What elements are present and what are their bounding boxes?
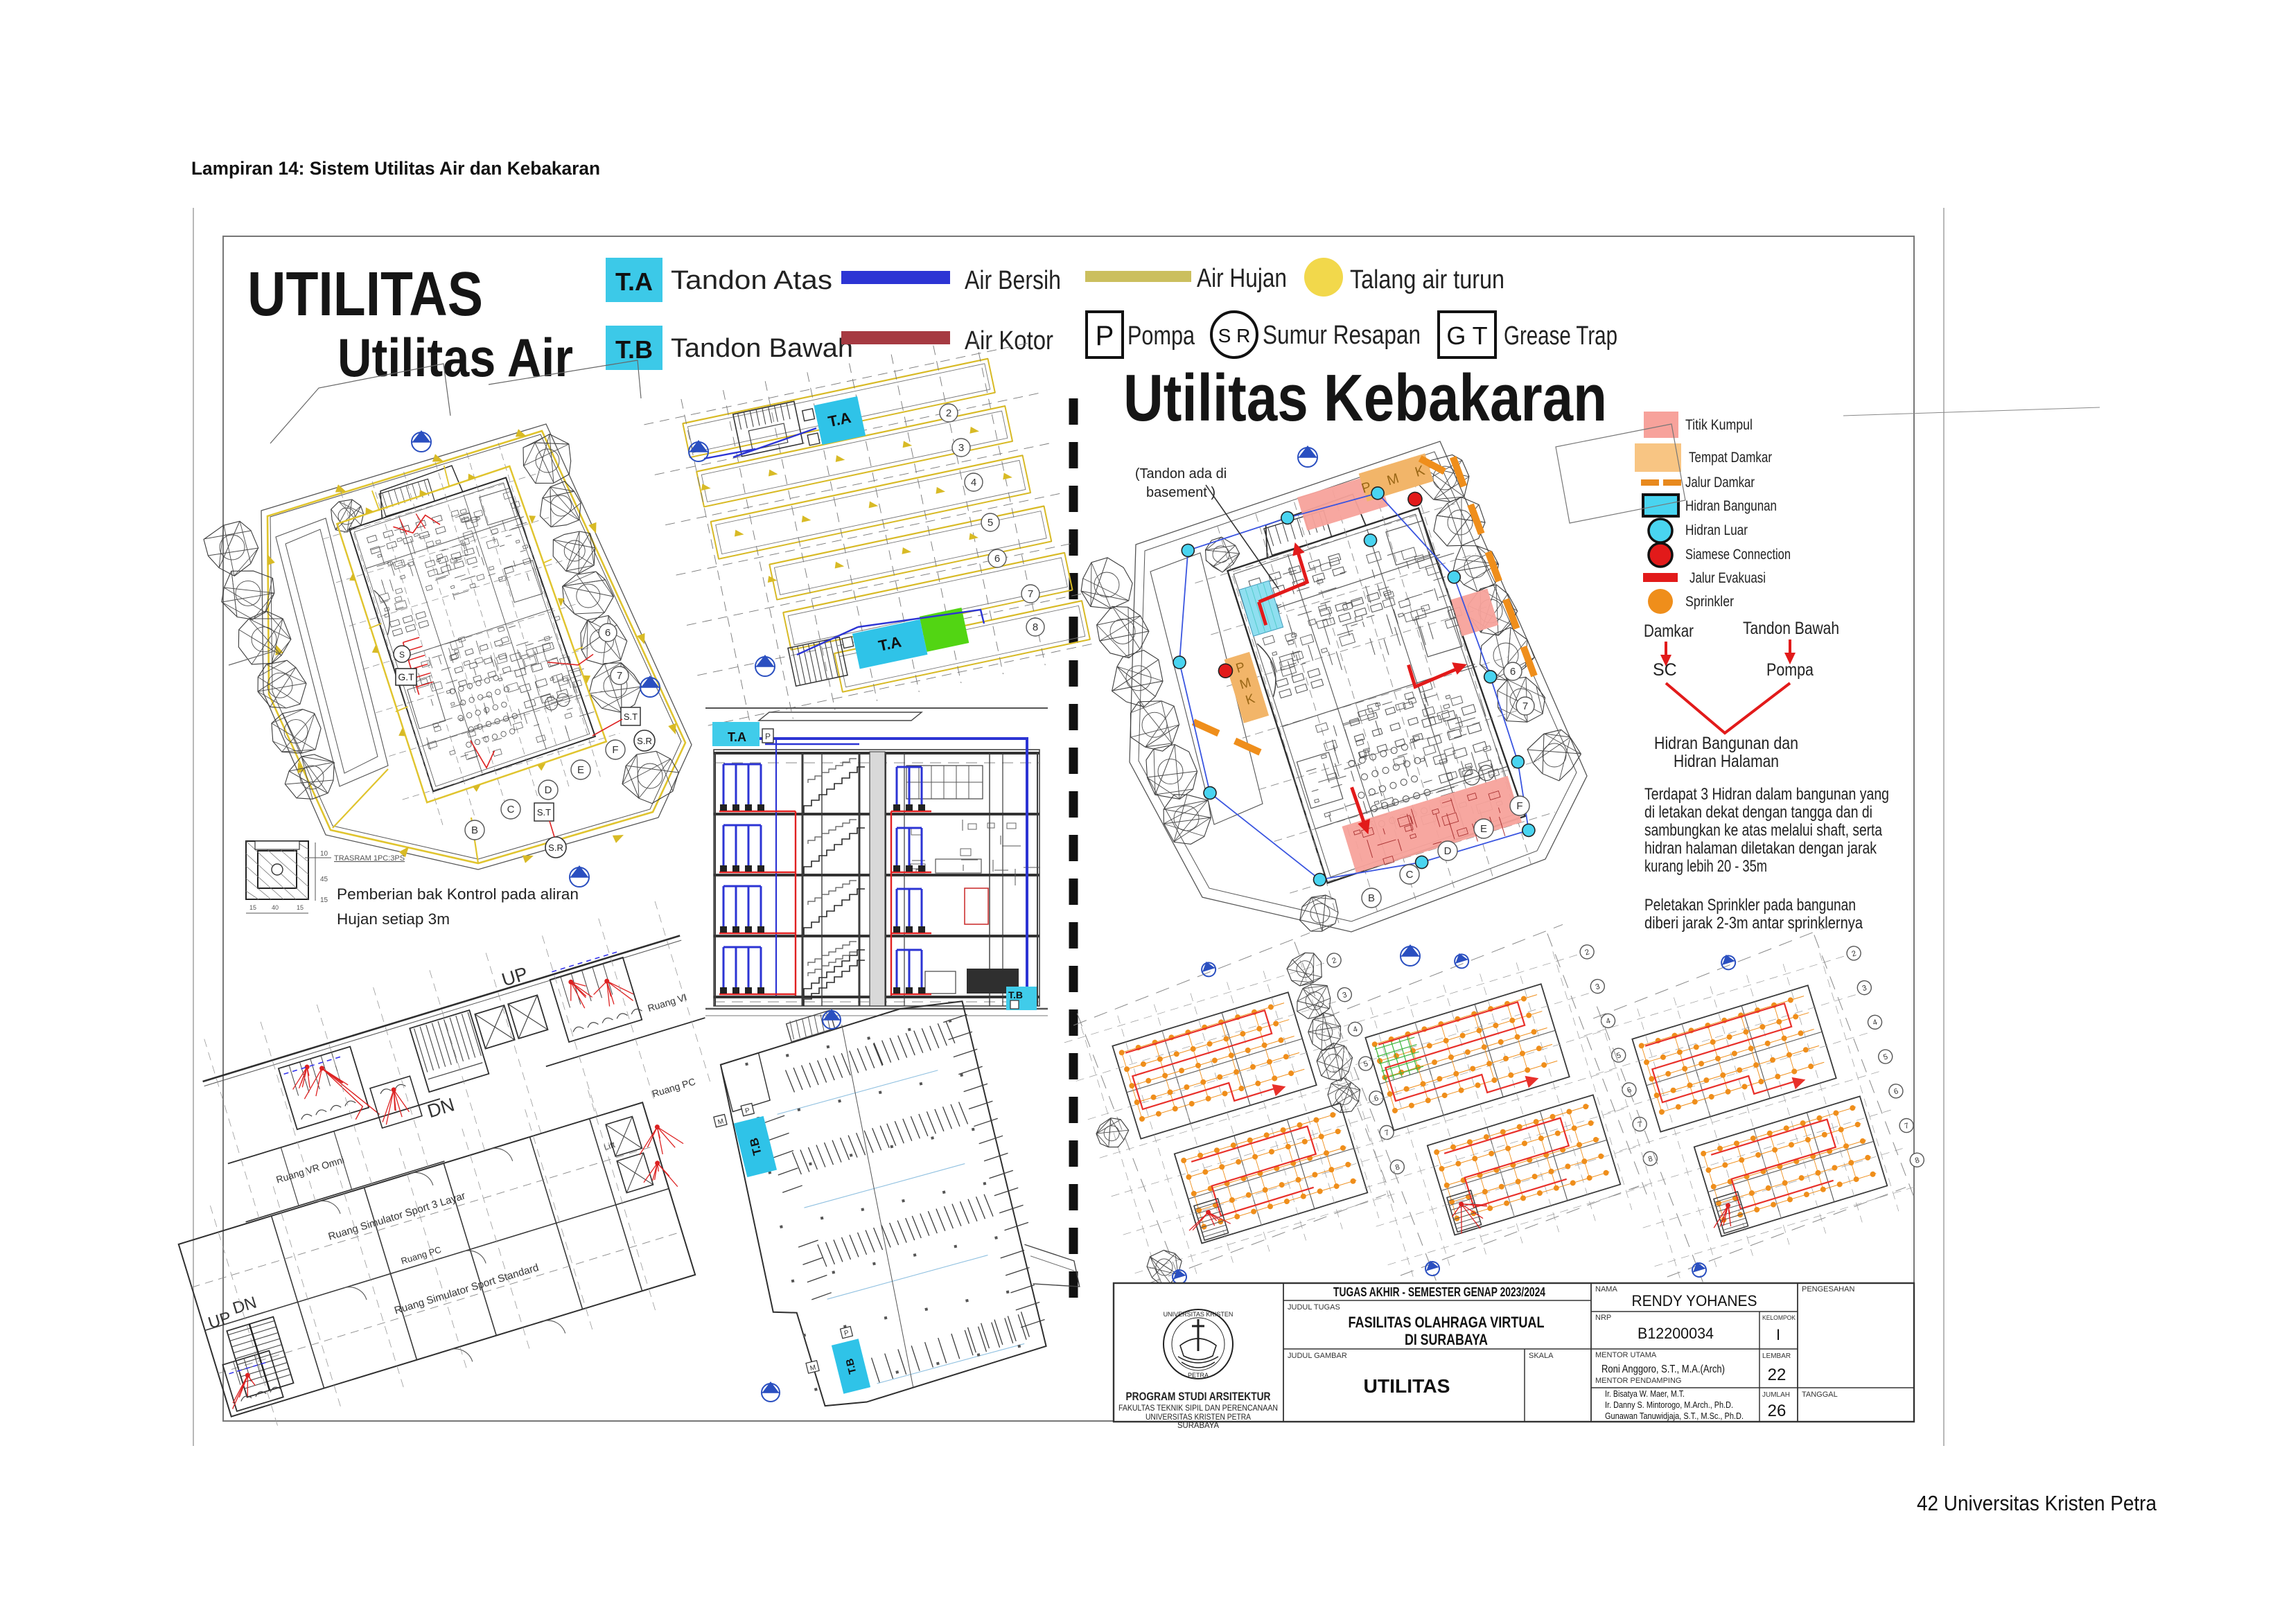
svg-text:Pemberian bak Kontrol pada ali: Pemberian bak Kontrol pada aliran xyxy=(337,885,579,903)
svg-text:7: 7 xyxy=(1028,588,1033,600)
svg-text:Titik Kumpul: Titik Kumpul xyxy=(1685,417,1753,433)
svg-text:F: F xyxy=(612,744,618,756)
svg-text:(Tandon ada di: (Tandon ada di xyxy=(1135,466,1227,482)
svg-text:T.A: T.A xyxy=(615,267,653,296)
svg-text:Utilitas Air: Utilitas Air xyxy=(337,327,573,388)
svg-text:Pompa: Pompa xyxy=(1127,321,1195,351)
svg-text:10: 10 xyxy=(320,850,328,858)
svg-text:Tempat Damkar: Tempat Damkar xyxy=(1689,450,1772,466)
svg-text:45: 45 xyxy=(320,876,328,883)
svg-text:Tandon Atas: Tandon Atas xyxy=(671,266,832,295)
svg-text:Talang air turun: Talang air turun xyxy=(1350,265,1504,294)
svg-text:C: C xyxy=(1406,869,1414,881)
svg-text:6: 6 xyxy=(1510,666,1516,678)
svg-text:C: C xyxy=(507,804,515,815)
svg-text:P: P xyxy=(765,732,771,741)
svg-text:Hidran Bangunan dan: Hidran Bangunan dan xyxy=(1654,734,1798,753)
svg-text:NRP: NRP xyxy=(1595,1314,1611,1322)
svg-text:26: 26 xyxy=(1768,1402,1787,1420)
svg-text:JUDUL GAMBAR: JUDUL GAMBAR xyxy=(1288,1352,1347,1360)
svg-text:Ir. Danny S. Mintorogo, M.Arch: Ir. Danny S. Mintorogo, M.Arch., Ph.D. xyxy=(1605,1400,1733,1410)
svg-text:4: 4 xyxy=(971,477,976,488)
svg-text:Hidran Bangunan: Hidran Bangunan xyxy=(1685,498,1777,514)
svg-text:Terdapat 3 Hidran dalam bangun: Terdapat 3 Hidran dalam bangunan yang xyxy=(1644,785,1889,804)
svg-text:PETRA: PETRA xyxy=(1188,1372,1209,1379)
svg-text:PROGRAM STUDI ARSITEKTUR: PROGRAM STUDI ARSITEKTUR xyxy=(1126,1390,1271,1403)
svg-text:8: 8 xyxy=(1033,621,1038,633)
svg-text:basement ): basement ) xyxy=(1146,485,1215,500)
svg-text:Jalur Evakuasi: Jalur Evakuasi xyxy=(1689,570,1766,586)
svg-text:kurang lebih 20 - 35m: kurang lebih 20 - 35m xyxy=(1644,857,1767,876)
svg-text:di letakan dekat dengan tangga: di letakan dekat dengan tangga dan di xyxy=(1644,803,1872,822)
svg-text:6: 6 xyxy=(605,627,611,639)
svg-text:F: F xyxy=(1516,800,1522,812)
svg-text:sambungkan ke atas melalui sha: sambungkan ke atas melalui shaft, serta xyxy=(1644,821,1883,840)
svg-text:B: B xyxy=(1368,892,1375,904)
svg-text:T.B: T.B xyxy=(615,335,653,364)
svg-text:Roni Anggoro, S.T., M.A.(Arch): Roni Anggoro, S.T., M.A.(Arch) xyxy=(1601,1363,1725,1375)
svg-text:Ir. Bisatya W. Maer, M.T.: Ir. Bisatya W. Maer, M.T. xyxy=(1605,1388,1685,1399)
svg-text:S.R: S.R xyxy=(637,736,652,746)
svg-text:2: 2 xyxy=(946,407,951,419)
svg-text:MENTOR UTAMA: MENTOR UTAMA xyxy=(1595,1351,1657,1359)
svg-text:Lampiran 14: Sistem Utilitas A: Lampiran 14: Sistem Utilitas Air dan Keb… xyxy=(191,158,600,179)
svg-text:Tandon Bawah: Tandon Bawah xyxy=(1743,619,1839,638)
svg-text:TUGAS AKHIR - SEMESTER GENAP 2: TUGAS AKHIR - SEMESTER GENAP 2023/2024 xyxy=(1333,1285,1545,1299)
svg-text:E: E xyxy=(1480,823,1487,835)
svg-text:T.A: T.A xyxy=(728,730,746,744)
svg-text:Peletakan Sprinkler pada bangu: Peletakan Sprinkler pada bangunan xyxy=(1644,896,1856,915)
svg-text:22: 22 xyxy=(1768,1366,1787,1384)
svg-text:diberi jarak 2-3m antar sprink: diberi jarak 2-3m antar sprinklernya xyxy=(1644,914,1863,933)
svg-text:Grease Trap: Grease Trap xyxy=(1504,321,1617,351)
svg-text:S.T: S.T xyxy=(537,807,551,818)
svg-text:S R: S R xyxy=(1218,325,1251,346)
svg-text:15: 15 xyxy=(320,897,328,904)
svg-text:UTILITAS: UTILITAS xyxy=(247,260,483,329)
svg-text:TANGGAL: TANGGAL xyxy=(1802,1391,1838,1399)
svg-text:KELOMPOK: KELOMPOK xyxy=(1762,1314,1796,1321)
svg-text:NAMA: NAMA xyxy=(1595,1285,1617,1294)
svg-text:S: S xyxy=(399,650,405,660)
svg-text:G T: G T xyxy=(1446,321,1487,350)
svg-text:6: 6 xyxy=(994,553,1000,565)
svg-text:Sprinkler: Sprinkler xyxy=(1685,594,1734,610)
svg-text:15: 15 xyxy=(249,904,256,911)
svg-text:5: 5 xyxy=(988,517,993,529)
svg-text:PENGESAHAN: PENGESAHAN xyxy=(1802,1285,1854,1294)
svg-text:Pompa: Pompa xyxy=(1766,660,1814,680)
svg-text:3: 3 xyxy=(958,442,964,454)
svg-text:SKALA: SKALA xyxy=(1529,1352,1554,1360)
svg-text:G.T: G.T xyxy=(398,671,414,682)
svg-text:15: 15 xyxy=(297,904,304,911)
svg-text:UTILITAS: UTILITAS xyxy=(1364,1375,1450,1397)
svg-text:FAKULTAS TEKNIK SIPIL DAN PERE: FAKULTAS TEKNIK SIPIL DAN PERENCANAAN xyxy=(1118,1403,1278,1413)
svg-text:T.B: T.B xyxy=(1008,989,1023,1000)
svg-text:Air Kotor: Air Kotor xyxy=(965,326,1053,355)
svg-text:Hidran Luar: Hidran Luar xyxy=(1685,522,1748,538)
svg-text:Utilitas Kebakaran: Utilitas Kebakaran xyxy=(1123,361,1607,435)
svg-text:LEMBAR: LEMBAR xyxy=(1762,1352,1791,1360)
svg-text:RENDY YOHANES: RENDY YOHANES xyxy=(1632,1292,1757,1309)
svg-text:Siamese Connection: Siamese Connection xyxy=(1685,547,1791,563)
svg-text:B: B xyxy=(471,824,478,836)
svg-text:Jalur Damkar: Jalur Damkar xyxy=(1685,475,1755,491)
svg-text:TRASRAM 1PC:3PS: TRASRAM 1PC:3PS xyxy=(334,854,405,863)
svg-text:SC: SC xyxy=(1653,660,1677,680)
svg-text:Hujan setiap 3m: Hujan setiap 3m xyxy=(337,910,450,928)
svg-text:D: D xyxy=(1444,845,1452,857)
svg-text:P: P xyxy=(1096,321,1114,351)
svg-text:Gunawan Tanuwidjaja, S.T., M.S: Gunawan Tanuwidjaja, S.T., M.Sc., Ph.D. xyxy=(1605,1411,1744,1421)
svg-text:40: 40 xyxy=(272,904,279,911)
svg-text:UNIVERSITAS KRISTEN: UNIVERSITAS KRISTEN xyxy=(1164,1311,1234,1318)
svg-text:7: 7 xyxy=(617,670,622,682)
svg-text:Sumur Resapan: Sumur Resapan xyxy=(1263,321,1421,350)
svg-text:JUDUL TUGAS: JUDUL TUGAS xyxy=(1288,1303,1340,1312)
svg-text:S.T: S.T xyxy=(624,712,638,722)
svg-text:B12200034: B12200034 xyxy=(1638,1325,1714,1342)
svg-text:SURABAYA: SURABAYA xyxy=(1177,1420,1219,1430)
svg-text:E: E xyxy=(577,764,584,776)
svg-text:Air Hujan: Air Hujan xyxy=(1197,264,1287,293)
svg-text:D: D xyxy=(545,784,552,796)
svg-text:7: 7 xyxy=(1522,700,1528,712)
svg-text:I: I xyxy=(1776,1326,1780,1343)
svg-text:Air Bersih: Air Bersih xyxy=(965,266,1061,295)
svg-text:Tandon Bawah: Tandon Bawah xyxy=(671,334,853,363)
svg-text:42 Universitas Kristen Petra: 42 Universitas Kristen Petra xyxy=(1917,1491,2157,1515)
svg-text:JUMLAH: JUMLAH xyxy=(1762,1391,1790,1399)
svg-text:MENTOR PENDAMPING: MENTOR PENDAMPING xyxy=(1595,1377,1681,1385)
svg-text:Hidran Halaman: Hidran Halaman xyxy=(1674,752,1779,771)
svg-text:S.R: S.R xyxy=(548,842,563,853)
svg-text:DI SURABAYA: DI SURABAYA xyxy=(1405,1331,1488,1348)
svg-text:FASILITAS OLAHRAGA VIRTUAL: FASILITAS OLAHRAGA VIRTUAL xyxy=(1349,1314,1545,1331)
svg-text:Damkar: Damkar xyxy=(1644,621,1694,641)
svg-text:hidran halaman diletakan denga: hidran halaman diletakan dengan jarak xyxy=(1644,839,1877,858)
